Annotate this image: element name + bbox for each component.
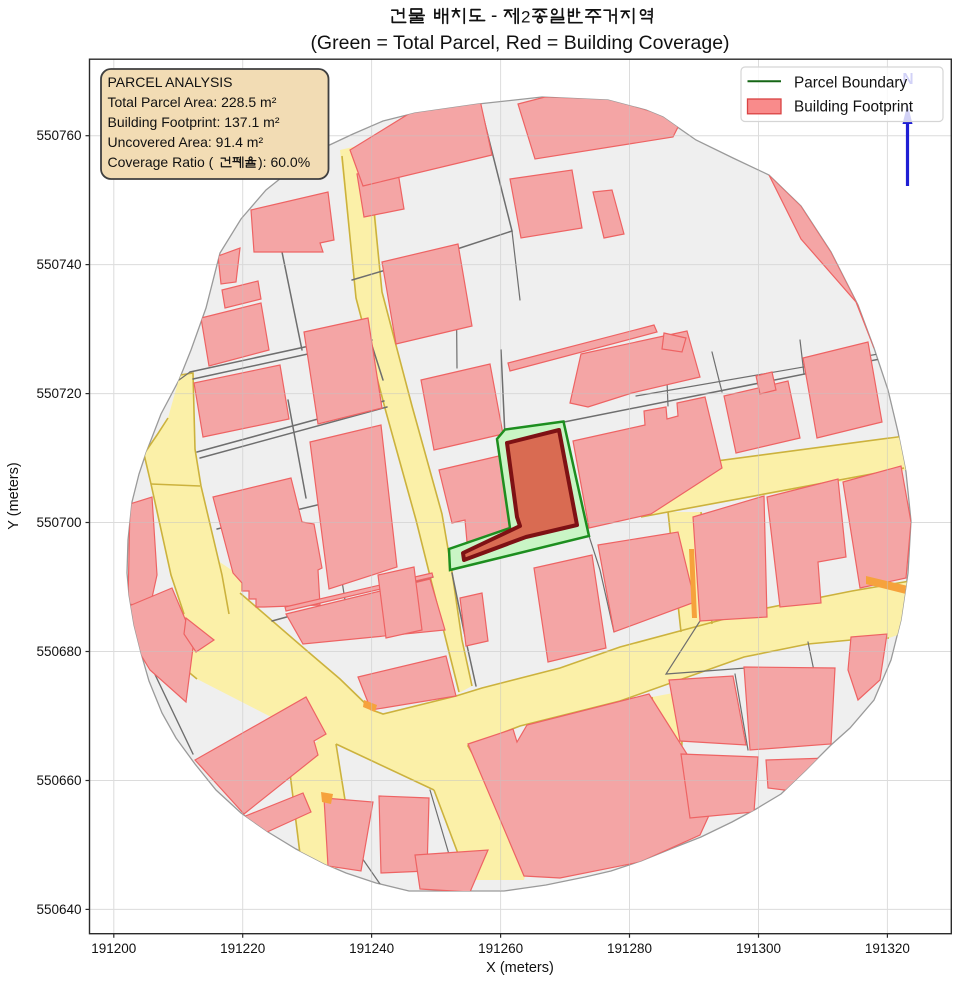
svg-text:Total Parcel Area: 228.5 m²: Total Parcel Area: 228.5 m²	[108, 94, 277, 110]
svg-text:Building Footprint: Building Footprint	[794, 99, 914, 116]
svg-text:): 60.0%: ): 60.0%	[258, 154, 310, 170]
svg-text:550720: 550720	[36, 386, 81, 401]
svg-text:(Green = Total Parcel, Red = B: (Green = Total Parcel, Red = Building Co…	[310, 32, 729, 54]
svg-text:191280: 191280	[607, 941, 652, 956]
svg-text:191260: 191260	[478, 941, 523, 956]
svg-text:X (meters): X (meters)	[486, 960, 554, 976]
svg-text:550680: 550680	[36, 644, 81, 659]
svg-text:550740: 550740	[36, 257, 81, 272]
svg-text:-: -	[491, 6, 497, 27]
svg-text:191240: 191240	[349, 941, 394, 956]
svg-text:Coverage Ratio (: Coverage Ratio (	[108, 154, 214, 170]
svg-text:191320: 191320	[865, 941, 910, 956]
svg-text:550700: 550700	[36, 515, 81, 530]
svg-text:191220: 191220	[220, 941, 265, 956]
svg-text:550760: 550760	[36, 128, 81, 143]
svg-text:Building Footprint: 137.1 m²: Building Footprint: 137.1 m²	[108, 114, 280, 130]
svg-text:Uncovered Area: 91.4 m²: Uncovered Area: 91.4 m²	[108, 134, 264, 150]
svg-text:Parcel Boundary: Parcel Boundary	[794, 75, 907, 92]
svg-text:Y (meters): Y (meters)	[6, 462, 22, 529]
svg-text:PARCEL ANALYSIS: PARCEL ANALYSIS	[108, 74, 233, 90]
svg-text:550640: 550640	[36, 902, 81, 917]
svg-text:191200: 191200	[91, 941, 136, 956]
svg-text:2: 2	[521, 8, 530, 27]
svg-text:191300: 191300	[736, 941, 781, 956]
svg-text:550660: 550660	[36, 773, 81, 788]
